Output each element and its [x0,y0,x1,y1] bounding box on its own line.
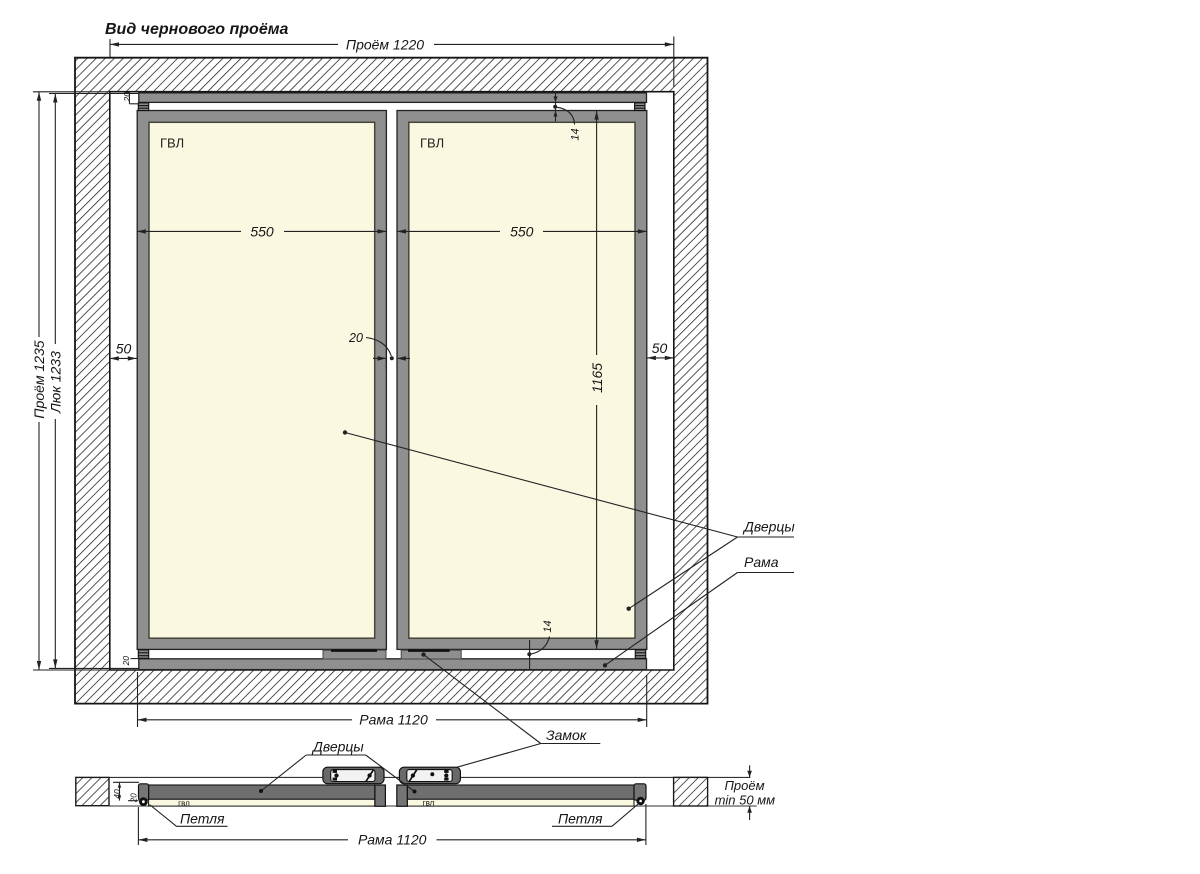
svg-text:40: 40 [112,789,122,799]
svg-text:Вид чернового проёма: Вид чернового проёма [105,21,289,38]
svg-text:Дверцы: Дверцы [311,739,364,755]
svg-text:550: 550 [250,224,274,240]
svg-text:Рама 1120: Рама 1120 [358,831,427,847]
svg-text:20: 20 [122,92,132,103]
svg-text:20: 20 [129,793,138,803]
svg-text:20: 20 [121,656,131,667]
svg-text:50: 50 [652,340,668,356]
svg-text:50: 50 [116,341,132,357]
svg-text:Проём: Проём [724,778,764,793]
svg-text:550: 550 [510,224,534,240]
svg-text:Проём 1220: Проём 1220 [346,37,424,53]
svg-text:гвл: гвл [423,799,435,808]
svg-text:Петля: Петля [180,811,225,827]
svg-text:гвл: гвл [178,799,190,808]
svg-text:ГВЛ: ГВЛ [420,136,444,151]
svg-text:ГВЛ: ГВЛ [160,136,184,151]
svg-text:1165: 1165 [589,363,605,393]
svg-text:Рама: Рама [744,554,779,570]
svg-text:14: 14 [569,128,581,140]
svg-text:Замок: Замок [546,727,588,743]
svg-text:Дверцы: Дверцы [742,519,795,535]
svg-text:Петля: Петля [558,811,603,827]
svg-text:14: 14 [542,620,554,632]
svg-text:Люк 1233: Люк 1233 [47,351,63,414]
svg-text:20: 20 [348,331,363,345]
svg-text:min 50 мм: min 50 мм [715,793,776,808]
svg-text:Проём 1235: Проём 1235 [31,340,47,418]
svg-text:Рама 1120: Рама 1120 [359,712,428,728]
